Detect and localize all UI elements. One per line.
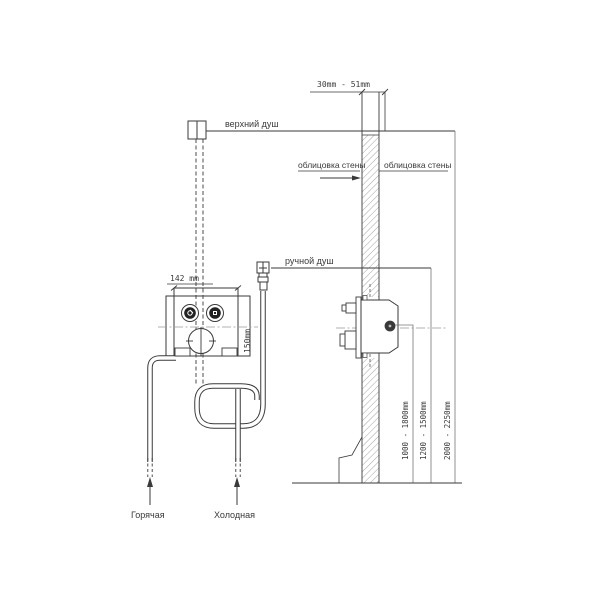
wall-cladding-right-label: облицовка стены [384,160,452,170]
technical-drawing-canvas: верхний душ 142 mm [0,0,600,600]
lever-side [345,331,356,349]
mixer-valve-side [340,296,398,359]
cold-supply-arrow [234,477,240,505]
hand-shower-connector [257,262,269,290]
valve-height-label: 150mm [243,329,252,353]
valve-width-label: 142 mm [170,274,199,283]
wall-cladding-left: облицовка стены [298,160,366,181]
wall-cladding-left-label: облицовка стены [298,160,366,170]
knob-side [346,303,356,313]
hot-supply-label: Горячая [131,510,165,520]
trim-plate-side [356,297,361,358]
cold-supply-label: Холодная [214,510,255,520]
mixer-height-label: 1200 - 1500mm [419,401,428,460]
wall-cladding-right: облицовка стены [379,160,452,171]
overhead-shower-head [188,121,206,139]
hand-shower-label: ручной душ [285,256,334,266]
flow-knob [207,305,224,322]
upper-shower-height-label: 2000 - 2250mm [443,401,452,460]
wall-thickness-label: 30mm - 51mm [317,80,370,89]
cold-supply-pipe [236,389,240,477]
shower-installation-diagram: верхний душ 142 mm [0,0,600,600]
wall-section [362,92,385,483]
temperature-knob [182,305,199,322]
hand-shower-height-label: 1000 - 1800mm [401,401,410,460]
upper-shower-label: верхний душ [225,119,279,129]
wall-thickness-dimension: 30mm - 51mm [310,80,388,95]
diverter-control [186,327,216,356]
shower-tray-profile [339,437,362,483]
hot-supply-pipe [148,358,176,477]
hot-supply-arrow [147,477,153,505]
